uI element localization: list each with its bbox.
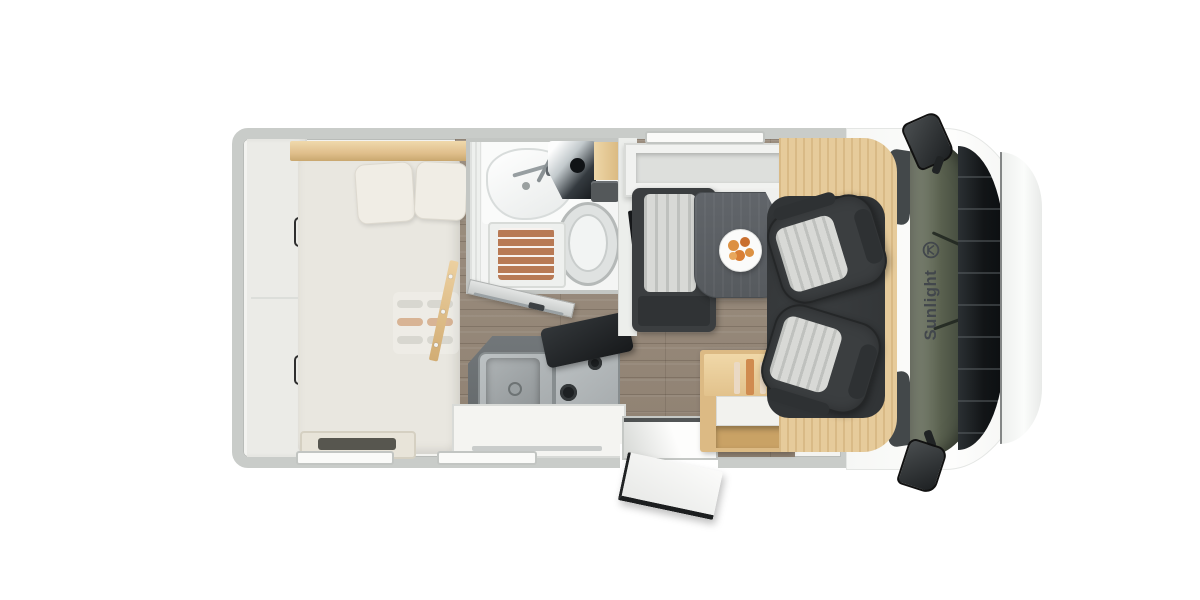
front-bumper xyxy=(1000,152,1042,444)
overhead-locker-shelf xyxy=(636,153,782,183)
bathroom-ribbed-wall xyxy=(470,142,481,282)
bed-pillow-right xyxy=(414,161,469,222)
window-bottom-mid xyxy=(437,451,537,465)
wardrobe-seam xyxy=(251,297,301,299)
vent-inner xyxy=(318,438,396,450)
window-top-dinette xyxy=(645,131,765,144)
fruit-plate xyxy=(719,229,762,272)
bench-cushion xyxy=(644,194,696,292)
bench-base xyxy=(638,296,710,326)
mirror-cabinet-knob xyxy=(570,158,585,173)
side-mirror-bottom xyxy=(898,430,950,486)
bed-headboard-wood xyxy=(290,141,468,161)
hob-burner-large xyxy=(560,384,577,401)
shower-wood-mat xyxy=(498,228,554,280)
bathroom-wood-shelf xyxy=(594,142,620,180)
washbasin-drain xyxy=(522,182,530,190)
candle-center xyxy=(746,359,754,395)
toilet-seat xyxy=(568,214,608,272)
kitchen-drawer-open xyxy=(452,404,626,458)
motorhome-floorplan: Sunlight xyxy=(0,0,1200,600)
bathroom-heater-box xyxy=(591,181,619,202)
kitchen-sink-drain xyxy=(508,382,522,396)
cabinet-lower-shelf xyxy=(716,426,788,448)
brand-label: Sunlight xyxy=(922,255,940,355)
window-bottom-left xyxy=(296,451,394,465)
side-mirror-top xyxy=(904,116,956,172)
bed-pillow-left xyxy=(354,161,416,225)
candle-left xyxy=(734,362,740,394)
